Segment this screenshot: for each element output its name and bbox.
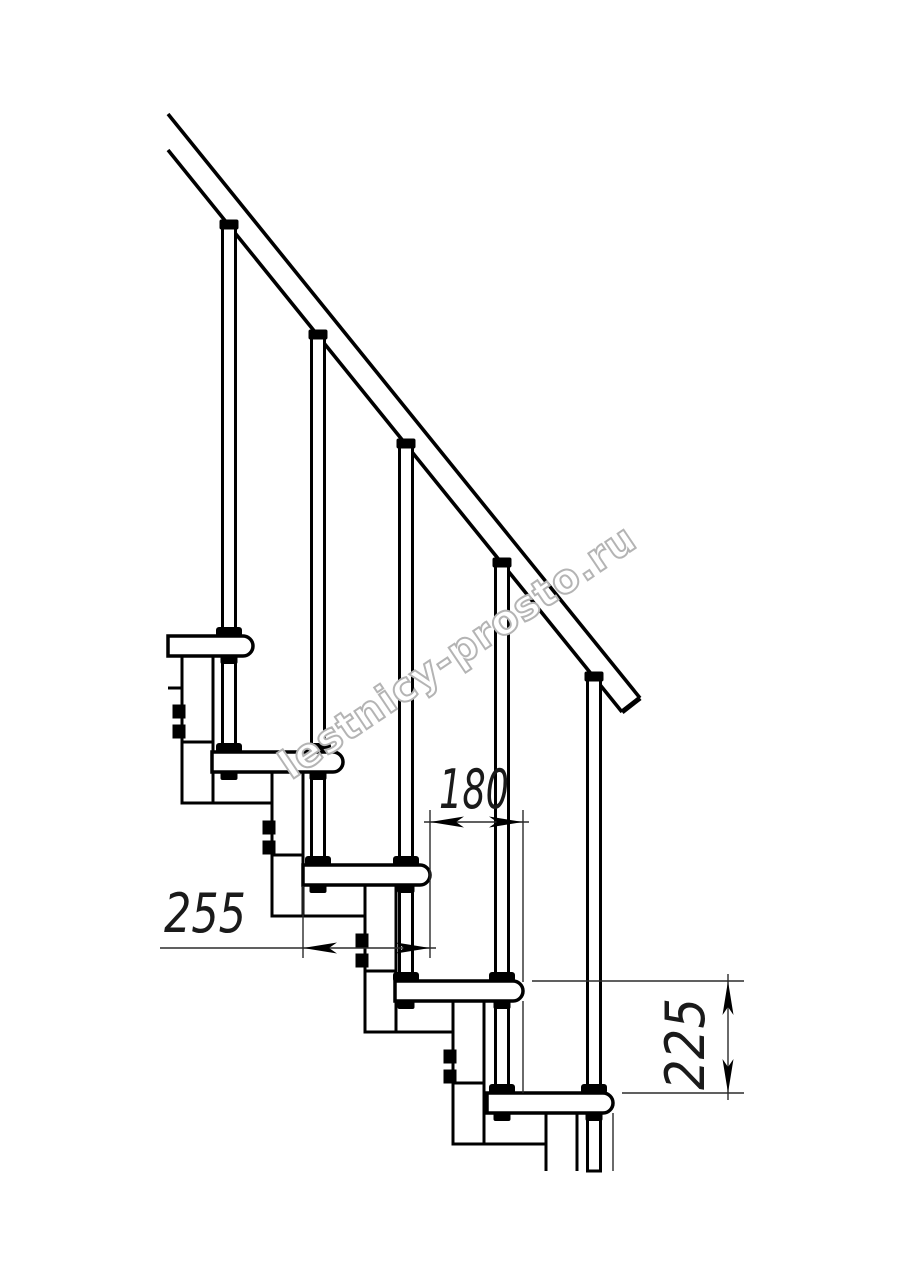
nut xyxy=(310,884,327,893)
bolt xyxy=(357,935,367,946)
bolt xyxy=(445,1071,455,1082)
tread-4 xyxy=(395,981,523,1001)
rod-upper xyxy=(588,678,601,1098)
nut xyxy=(221,655,238,664)
dimension-step-run xyxy=(424,810,529,982)
bolt xyxy=(264,842,274,853)
tread-5 xyxy=(487,1093,613,1113)
rail-cap xyxy=(493,558,512,568)
dimension-value-step-rise: 225 xyxy=(654,998,717,1090)
rod-lower xyxy=(312,770,325,870)
module-tube xyxy=(453,1001,484,1144)
collar xyxy=(305,856,331,866)
rail-cap xyxy=(585,672,604,682)
dimension-value-tread-depth: 255 xyxy=(164,882,246,945)
bolt xyxy=(264,822,274,833)
collar xyxy=(216,627,242,637)
staircase-technical-drawing: 180 255 225 lestnicy-prosto.ru xyxy=(0,0,914,1280)
support-module-5-cut xyxy=(546,1113,577,1171)
collar xyxy=(393,856,419,866)
bolt xyxy=(357,955,367,966)
module-tube xyxy=(365,885,396,1032)
nut xyxy=(494,1112,511,1121)
collar xyxy=(393,972,419,982)
rail-cap xyxy=(220,220,239,230)
dimension-value-step-run: 180 xyxy=(439,758,509,821)
tread-3 xyxy=(303,865,430,885)
nut xyxy=(398,884,415,893)
rail-cap xyxy=(397,439,416,449)
rail-cap xyxy=(309,330,328,340)
bolt xyxy=(445,1051,455,1062)
rod-lower xyxy=(400,883,413,986)
nut xyxy=(494,1000,511,1009)
collar xyxy=(216,743,242,753)
rod-upper xyxy=(223,227,236,641)
module-tube xyxy=(182,656,213,803)
nut xyxy=(398,1000,415,1009)
nut xyxy=(586,1112,603,1121)
tread-1 xyxy=(168,636,253,656)
baluster-1 xyxy=(223,227,236,757)
nut xyxy=(221,771,238,780)
rod-upper xyxy=(312,337,325,757)
module-tube xyxy=(272,772,303,916)
rod-lower xyxy=(496,999,509,1098)
bolt xyxy=(174,706,184,717)
bolt xyxy=(174,726,184,737)
collar xyxy=(489,972,515,982)
rod-lower xyxy=(223,654,236,757)
collar xyxy=(581,1084,607,1094)
collar xyxy=(489,1084,515,1094)
baluster-2 xyxy=(312,337,325,870)
